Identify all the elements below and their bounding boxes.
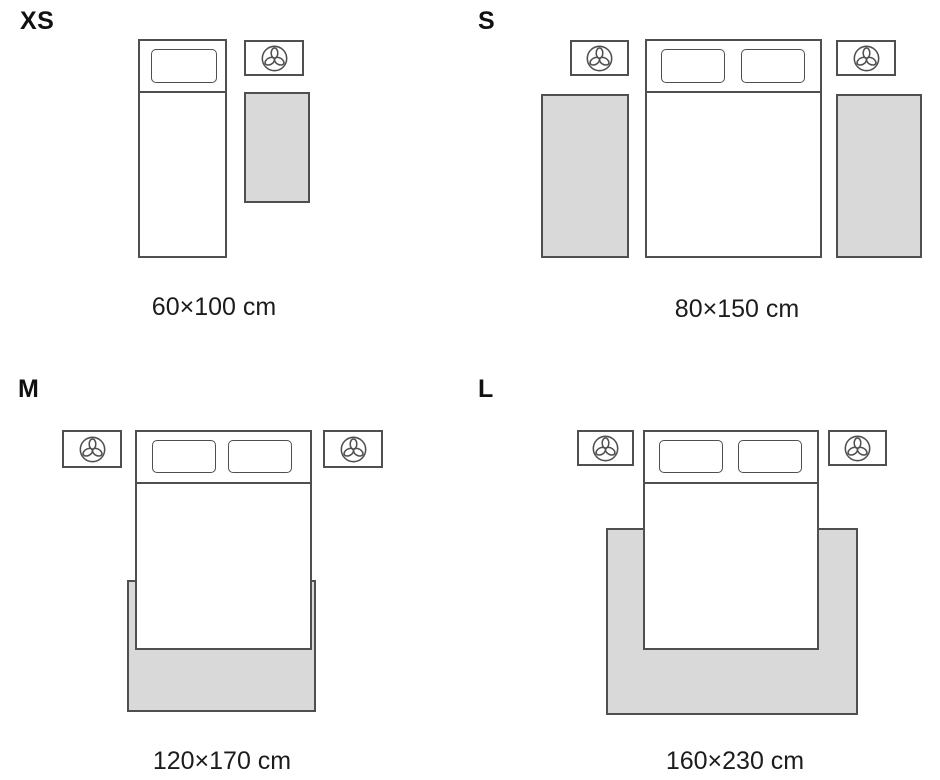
pillow	[659, 440, 723, 473]
size-label-m: M	[18, 376, 39, 402]
pillow	[228, 440, 292, 473]
lamp-plant-icon	[852, 44, 881, 73]
size-caption-s: 80×150 cm	[587, 295, 887, 323]
size-caption-l: 160×230 cm	[585, 747, 885, 775]
size-label-xs: XS	[20, 8, 54, 34]
bed-headboard	[645, 432, 817, 484]
rug-xs	[244, 92, 310, 203]
nightstand	[244, 40, 304, 76]
nightstand	[570, 40, 629, 76]
pillow	[661, 49, 725, 83]
lamp-plant-icon	[591, 434, 620, 463]
lamp-plant-icon	[260, 44, 289, 73]
bed-headboard	[647, 41, 820, 93]
pillow	[738, 440, 802, 473]
double-bed	[135, 430, 312, 650]
nightstand	[62, 430, 122, 468]
nightstand	[323, 430, 383, 468]
single-bed	[138, 39, 227, 258]
lamp-plant-icon	[339, 435, 368, 464]
size-caption-m: 120×170 cm	[72, 747, 372, 775]
bed-headboard	[140, 41, 225, 93]
pillow	[741, 49, 805, 83]
size-caption-xs: 60×100 cm	[64, 293, 364, 321]
double-bed	[643, 430, 819, 650]
bed-headboard	[137, 432, 310, 484]
size-label-s: S	[478, 8, 495, 34]
size-label-l: L	[478, 376, 494, 402]
pillow	[151, 49, 217, 83]
pillow	[152, 440, 216, 473]
lamp-plant-icon	[585, 44, 614, 73]
rug-s-left	[541, 94, 629, 258]
rug-s-right	[836, 94, 922, 258]
double-bed	[645, 39, 822, 258]
rug-size-guide: XS 60×100 cm S	[0, 0, 940, 780]
nightstand	[836, 40, 896, 76]
nightstand	[577, 430, 634, 466]
nightstand	[828, 430, 887, 466]
lamp-plant-icon	[843, 434, 872, 463]
lamp-plant-icon	[78, 435, 107, 464]
